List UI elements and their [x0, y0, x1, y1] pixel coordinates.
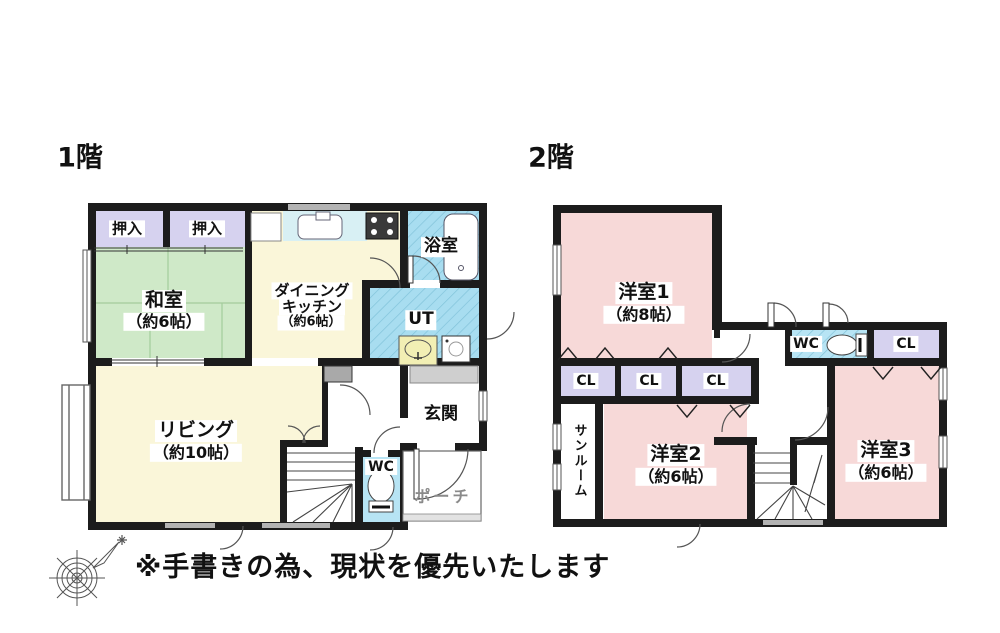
room-size-yoshitsu2: （約6帖） — [635, 468, 716, 486]
handwritten-disclaimer-note: ※手書きの為、現状を優先いたします — [135, 545, 610, 584]
room-label-sunroom: サンルーム — [568, 424, 589, 499]
room-label-utility: UT — [405, 310, 436, 330]
stairs-icon-2f — [753, 453, 825, 519]
room-label-yoshitsu3: 洋室3 — [857, 440, 914, 462]
floor2-title: 2階 — [525, 142, 577, 173]
room-label-bathroom: 浴室 — [421, 237, 461, 257]
room-label-oshiire1: 押入 — [109, 220, 145, 237]
room-label-cl2: CL — [636, 373, 661, 389]
toilet-icon — [368, 470, 394, 512]
wash-basin-icon — [399, 336, 437, 365]
room-label-yoshitsu2: 洋室2 — [647, 444, 704, 466]
room-label-dk-2: キッチン — [279, 298, 345, 315]
room-size-dk: （約6帖） — [277, 316, 344, 331]
washing-machine-icon — [442, 336, 470, 362]
room-label-cl1: CL — [573, 373, 598, 389]
room-size-yoshitsu1: （約8帖） — [603, 306, 684, 324]
floor1-title: 1階 — [54, 142, 106, 173]
room-size-yoshitsu3: （約6帖） — [845, 464, 926, 482]
room-label-cl4: CL — [893, 336, 918, 352]
room-label-porch: ポーチ — [411, 488, 474, 506]
room-size-washitsu: （約6帖） — [123, 313, 204, 331]
toilet-icon-2f — [827, 334, 867, 356]
room-size-living: （約10帖） — [150, 444, 242, 462]
room-label-yoshitsu1: 洋室1 — [615, 282, 672, 304]
room-label-oshiire2: 押入 — [189, 220, 225, 237]
room-label-wc1: WC — [365, 459, 397, 475]
compass-icon — [49, 535, 127, 606]
room-label-cl3: CL — [703, 373, 728, 389]
bay-window-icon — [62, 385, 90, 500]
room-label-living: リビング — [155, 420, 237, 442]
stove-icon — [366, 213, 398, 239]
room-label-washitsu: 和室 — [142, 290, 186, 312]
room-label-entrance: 玄関 — [421, 405, 461, 425]
room-label-wc2: WC — [790, 336, 822, 352]
floorplan-page: 1階 2階 押入 押入 和室 （約6帖） ダイニング キッチン （約6帖） 浴室… — [0, 0, 1000, 633]
